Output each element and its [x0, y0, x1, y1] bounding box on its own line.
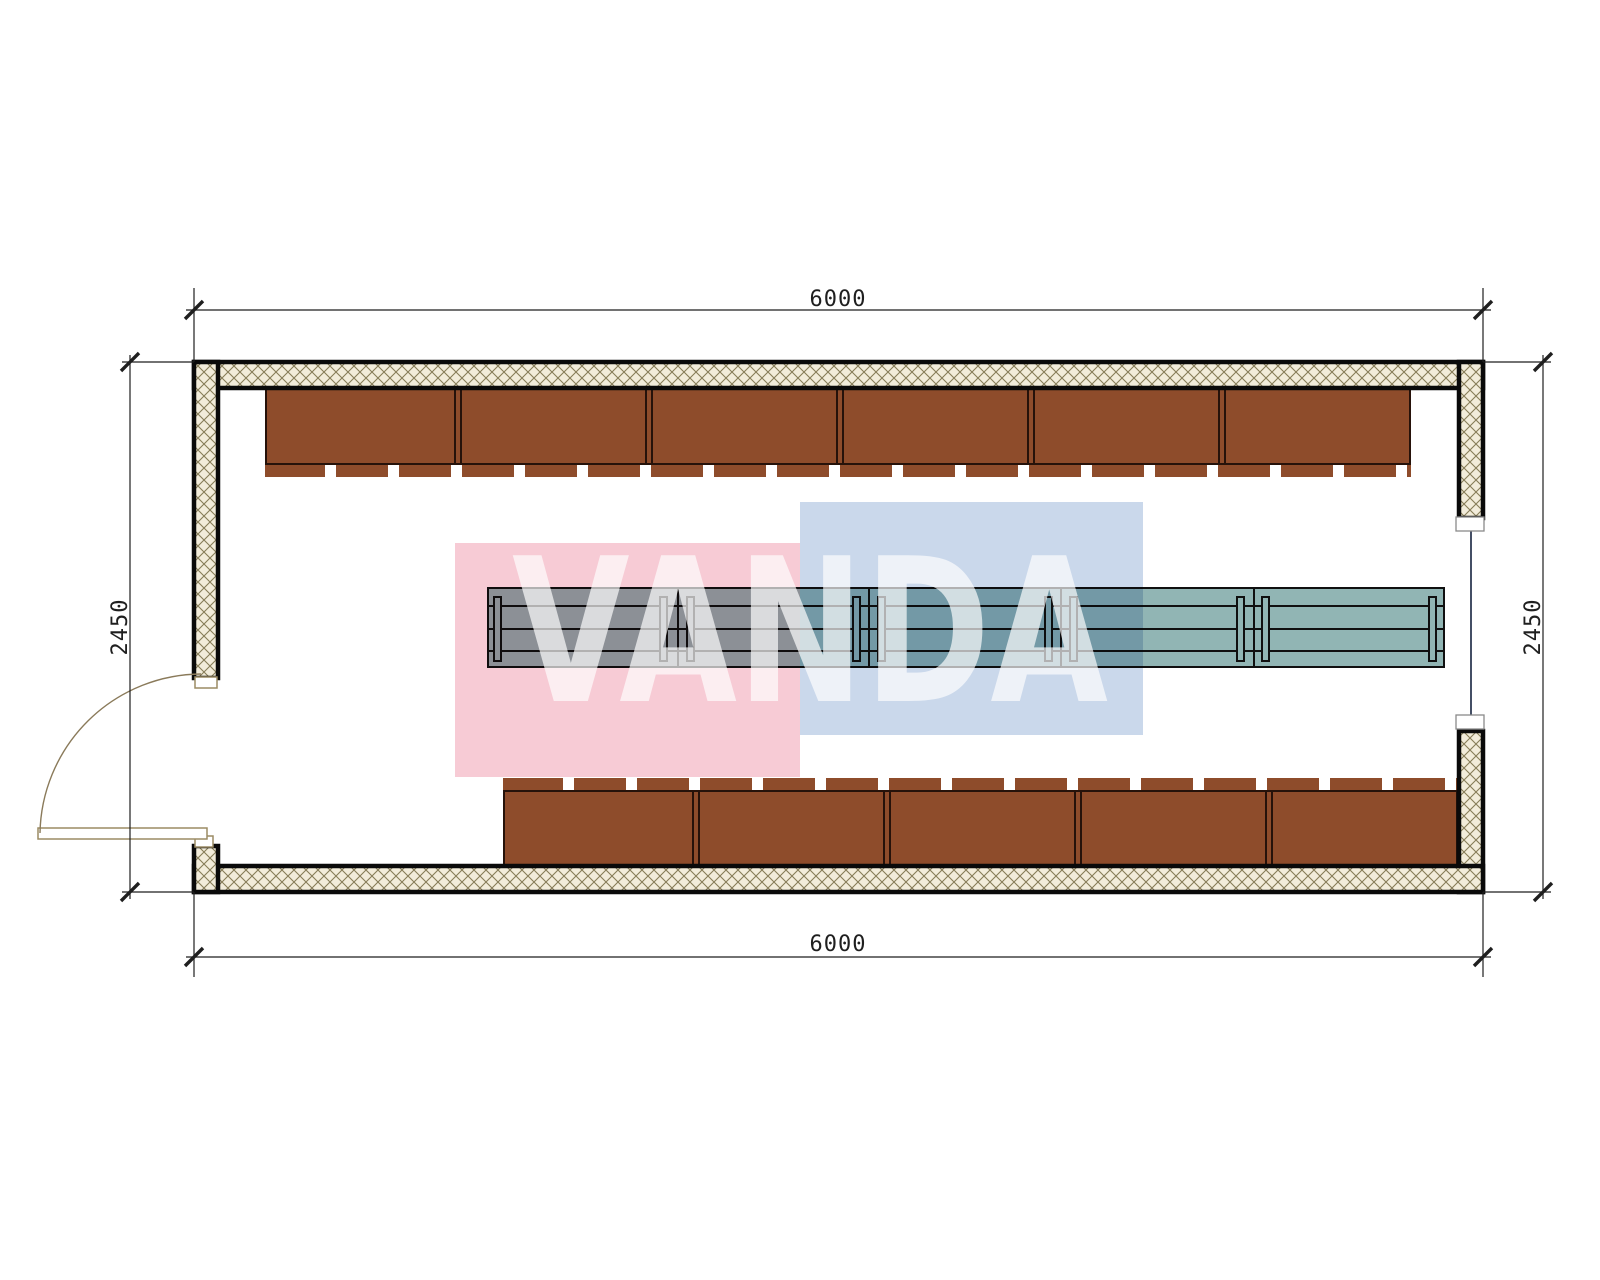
- window-frame-top: [1456, 517, 1484, 531]
- wall-right-upper: [1459, 362, 1483, 518]
- door-frame-top: [195, 677, 217, 688]
- dimension-label-left: 2450: [108, 599, 133, 656]
- watermark-text: VANDA: [512, 533, 1108, 733]
- wall-left-stub: [194, 846, 218, 892]
- door-swing-arc: [40, 674, 201, 833]
- dimension-label-top: 6000: [810, 287, 867, 312]
- floor-plan-canvas: 6000 6000 2450 2450 VANDA: [0, 0, 1600, 1280]
- dimension-right: 2450: [1483, 353, 1552, 901]
- door-leaf: [38, 828, 207, 839]
- dimension-top: 6000: [185, 287, 1492, 362]
- wall-left: [194, 362, 218, 678]
- dimension-label-right: 2450: [1521, 599, 1546, 656]
- wall-top: [194, 362, 1483, 388]
- dimension-label-bottom: 6000: [810, 932, 867, 957]
- dimension-bottom: 6000: [185, 892, 1492, 977]
- dimension-left: 2450: [108, 353, 194, 901]
- window-frame-bottom: [1456, 715, 1484, 729]
- wall-bottom: [194, 866, 1483, 892]
